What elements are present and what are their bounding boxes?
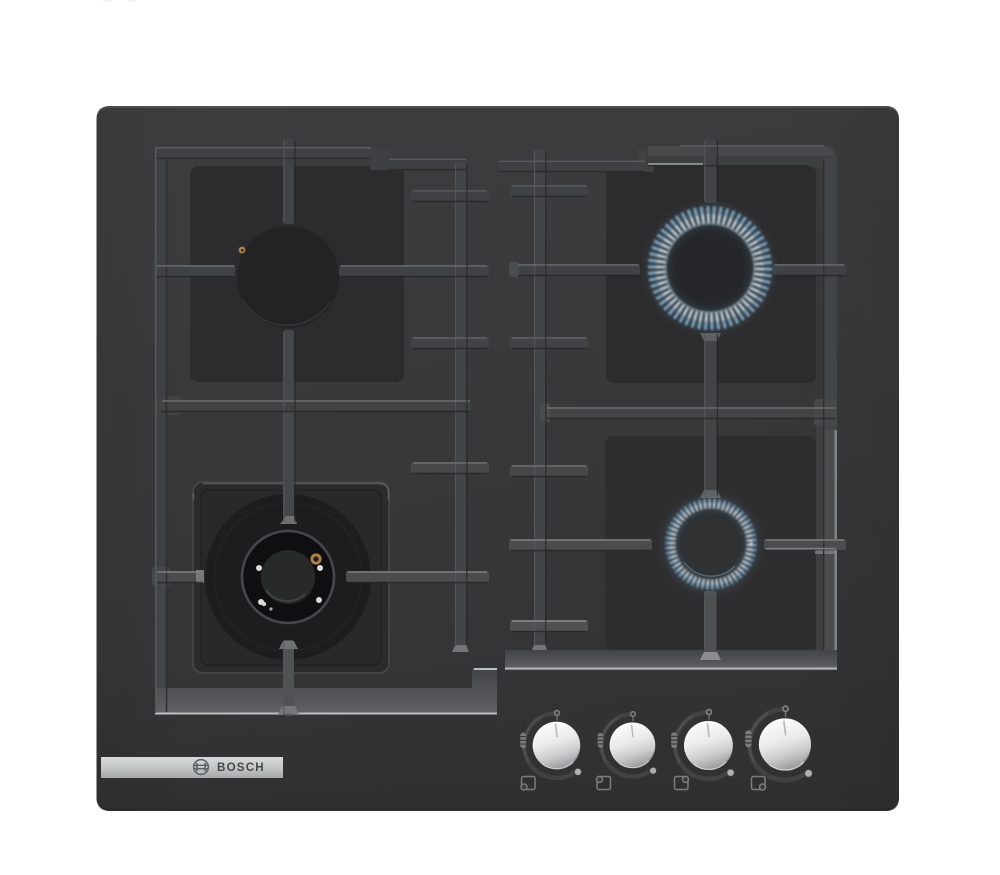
svg-text:BOSCH: BOSCH [217,761,265,774]
